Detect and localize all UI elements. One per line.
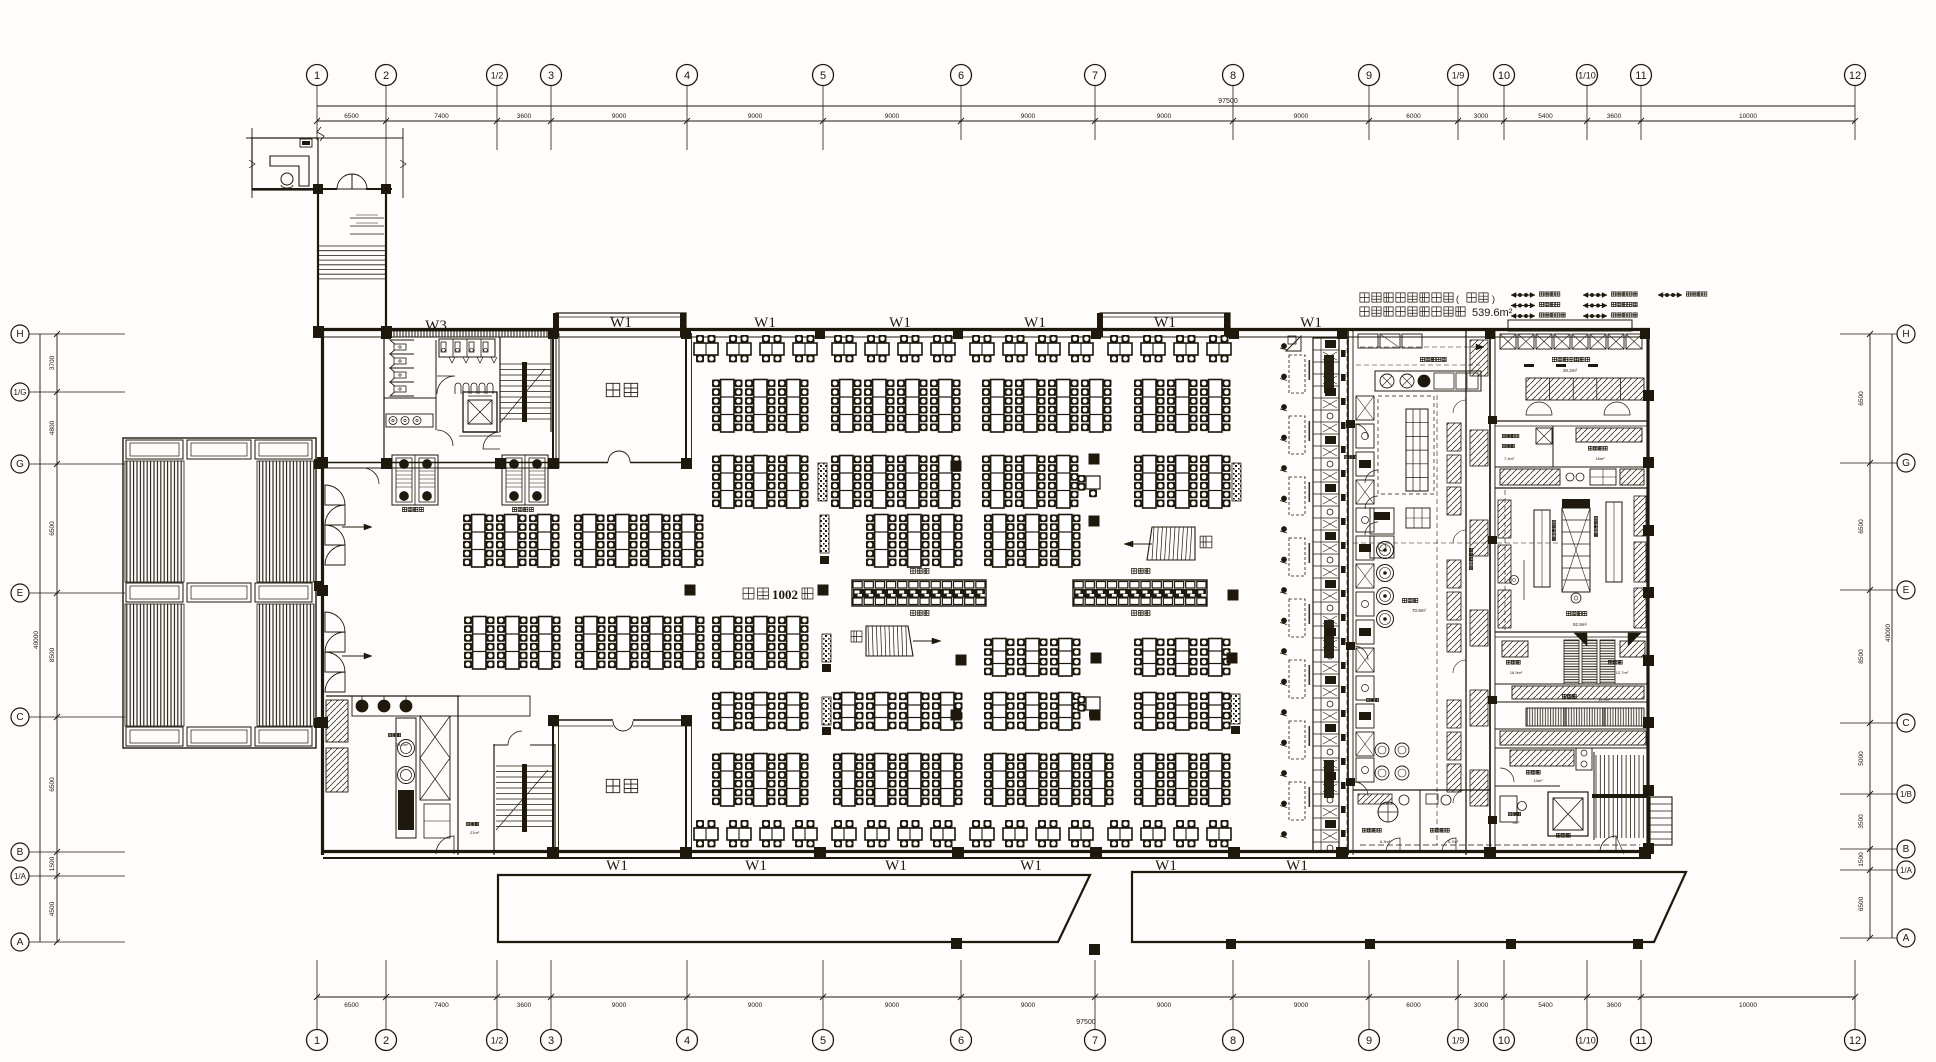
svg-text:8500: 8500 <box>1858 649 1865 664</box>
svg-text:9: 9 <box>1366 1035 1372 1047</box>
svg-text:4500: 4500 <box>49 901 56 916</box>
svg-text:G: G <box>16 459 24 470</box>
svg-text:9000: 9000 <box>1021 1002 1036 1009</box>
svg-text:A: A <box>17 937 24 948</box>
svg-text:W1: W1 <box>889 315 911 331</box>
svg-text:4: 4 <box>684 70 690 82</box>
svg-text:1/10: 1/10 <box>1578 1036 1596 1046</box>
svg-text:7: 7 <box>1092 1035 1098 1047</box>
svg-text:7400: 7400 <box>434 113 449 120</box>
svg-text:1500: 1500 <box>1858 852 1865 867</box>
svg-text:2: 2 <box>383 70 389 82</box>
svg-text:1/A: 1/A <box>1900 866 1913 875</box>
svg-text:W1: W1 <box>745 858 767 874</box>
svg-text:B: B <box>1903 844 1910 855</box>
svg-text:9000: 9000 <box>885 1002 900 1009</box>
svg-text:97500: 97500 <box>1076 1019 1096 1026</box>
svg-text:W1: W1 <box>754 315 776 331</box>
svg-text:6000: 6000 <box>1406 113 1421 120</box>
svg-text:1500: 1500 <box>49 856 56 871</box>
svg-text:97500: 97500 <box>1218 98 1238 105</box>
svg-text:12: 12 <box>1849 1035 1861 1047</box>
svg-text:10: 10 <box>1498 1035 1510 1047</box>
svg-text:W1: W1 <box>1154 315 1176 331</box>
svg-text:3600: 3600 <box>1607 113 1622 120</box>
svg-text:7.4m²: 7.4m² <box>1504 456 1515 461</box>
svg-text:9000: 9000 <box>1157 113 1172 120</box>
svg-text:8: 8 <box>1230 70 1236 82</box>
svg-text:3600: 3600 <box>517 1002 532 1009</box>
svg-text:34.5m²: 34.5m² <box>396 742 409 747</box>
svg-text:9000: 9000 <box>748 1002 763 1009</box>
svg-text:10: 10 <box>1498 70 1510 82</box>
svg-text:(: ( <box>1456 294 1459 304</box>
svg-text:C: C <box>1902 718 1909 729</box>
svg-text:W1: W1 <box>1020 858 1042 874</box>
svg-text:9: 9 <box>1366 70 1372 82</box>
svg-text:11: 11 <box>1635 1035 1646 1047</box>
svg-text:6000: 6000 <box>1406 1002 1421 1009</box>
svg-text:6: 6 <box>958 1035 964 1047</box>
svg-text:10000: 10000 <box>1739 113 1757 120</box>
svg-text:3500: 3500 <box>1858 814 1865 829</box>
svg-text:H: H <box>16 329 23 340</box>
svg-text:1/9: 1/9 <box>1452 1036 1465 1046</box>
svg-text:3000: 3000 <box>1474 1002 1489 1009</box>
svg-text:H: H <box>1902 329 1909 340</box>
svg-text:W1: W1 <box>885 858 907 874</box>
svg-text:6500: 6500 <box>1858 519 1865 534</box>
svg-text:3700: 3700 <box>49 355 56 370</box>
svg-text:1: 1 <box>314 70 320 82</box>
svg-text:70.9m²: 70.9m² <box>1412 608 1427 613</box>
svg-text:1/2: 1/2 <box>491 71 504 81</box>
svg-text:16.9m²: 16.9m² <box>1510 670 1523 675</box>
svg-text:6500: 6500 <box>344 1002 359 1009</box>
svg-text:9000: 9000 <box>612 1002 627 1009</box>
svg-text:1/10: 1/10 <box>1578 71 1596 81</box>
svg-text:1/2: 1/2 <box>491 1036 504 1046</box>
svg-text:3: 3 <box>548 70 554 82</box>
svg-text:B: B <box>17 847 24 858</box>
svg-text:3600: 3600 <box>517 113 532 120</box>
svg-text:6500: 6500 <box>1858 896 1865 911</box>
svg-text:9000: 9000 <box>1021 113 1036 120</box>
svg-text:5: 5 <box>820 1035 826 1047</box>
svg-text:W1: W1 <box>1024 315 1046 331</box>
svg-text:12: 12 <box>1849 70 1861 82</box>
svg-text:12.7m²: 12.7m² <box>1616 670 1629 675</box>
svg-text:1/9: 1/9 <box>1452 71 1465 81</box>
svg-text:1/G: 1/G <box>14 388 27 397</box>
svg-text:5: 5 <box>820 70 826 82</box>
svg-text:9000: 9000 <box>885 113 900 120</box>
svg-text:7400: 7400 <box>434 1002 449 1009</box>
svg-text:9000: 9000 <box>748 113 763 120</box>
svg-text:9000: 9000 <box>1294 1002 1309 1009</box>
svg-text:W1: W1 <box>1155 858 1177 874</box>
svg-text:1: 1 <box>314 1035 320 1047</box>
svg-text:3: 3 <box>548 1035 554 1047</box>
svg-text:3000: 3000 <box>1474 113 1489 120</box>
svg-text:W1: W1 <box>1286 858 1308 874</box>
svg-text:16m²: 16m² <box>1595 456 1605 461</box>
svg-text:40000: 40000 <box>33 631 40 649</box>
svg-text:8500: 8500 <box>49 647 56 662</box>
svg-text:W1: W1 <box>610 315 632 331</box>
svg-text:92.9m²: 92.9m² <box>1573 622 1588 627</box>
svg-text:1/B: 1/B <box>1900 790 1912 799</box>
svg-text:2: 2 <box>383 1035 389 1047</box>
svg-text:E: E <box>1903 585 1910 596</box>
svg-text:C: C <box>16 712 23 723</box>
svg-text:9000: 9000 <box>612 113 627 120</box>
svg-text:6500: 6500 <box>344 113 359 120</box>
svg-text:5400: 5400 <box>1538 113 1553 120</box>
svg-text:6500: 6500 <box>49 521 56 536</box>
svg-text:10000: 10000 <box>1739 1002 1757 1009</box>
svg-text:E: E <box>17 588 24 599</box>
svg-text:4: 4 <box>684 1035 690 1047</box>
svg-text:11: 11 <box>1635 70 1646 82</box>
svg-text:6500: 6500 <box>1858 391 1865 406</box>
svg-text:7: 7 <box>1092 70 1098 82</box>
svg-text:1002: 1002 <box>772 587 798 602</box>
svg-text:W1: W1 <box>1300 315 1322 331</box>
svg-text:6: 6 <box>958 70 964 82</box>
svg-text:9000: 9000 <box>1157 1002 1172 1009</box>
svg-text:W3: W3 <box>425 318 447 334</box>
svg-text:3600: 3600 <box>1607 1002 1622 1009</box>
svg-text:W1: W1 <box>606 858 628 874</box>
svg-text:5000: 5000 <box>1858 751 1865 766</box>
svg-text:19.9m²: 19.9m² <box>1598 697 1611 702</box>
svg-text:5m²: 5m² <box>1513 820 1521 825</box>
svg-text:40000: 40000 <box>1885 624 1892 642</box>
svg-text:4800: 4800 <box>49 420 56 435</box>
svg-text:5400: 5400 <box>1538 1002 1553 1009</box>
svg-text:6500: 6500 <box>49 777 56 792</box>
svg-text:G: G <box>1902 458 1910 469</box>
svg-text:21m²: 21m² <box>470 830 480 835</box>
svg-text:8: 8 <box>1230 1035 1236 1047</box>
svg-text:539.6m²: 539.6m² <box>1472 307 1513 319</box>
svg-text:14m²: 14m² <box>1533 778 1543 783</box>
svg-text:30.2m²: 30.2m² <box>1563 368 1578 373</box>
svg-text:A: A <box>1903 933 1910 944</box>
svg-text:1/A: 1/A <box>14 872 27 881</box>
svg-text:9000: 9000 <box>1294 113 1309 120</box>
svg-text:): ) <box>1492 294 1495 304</box>
